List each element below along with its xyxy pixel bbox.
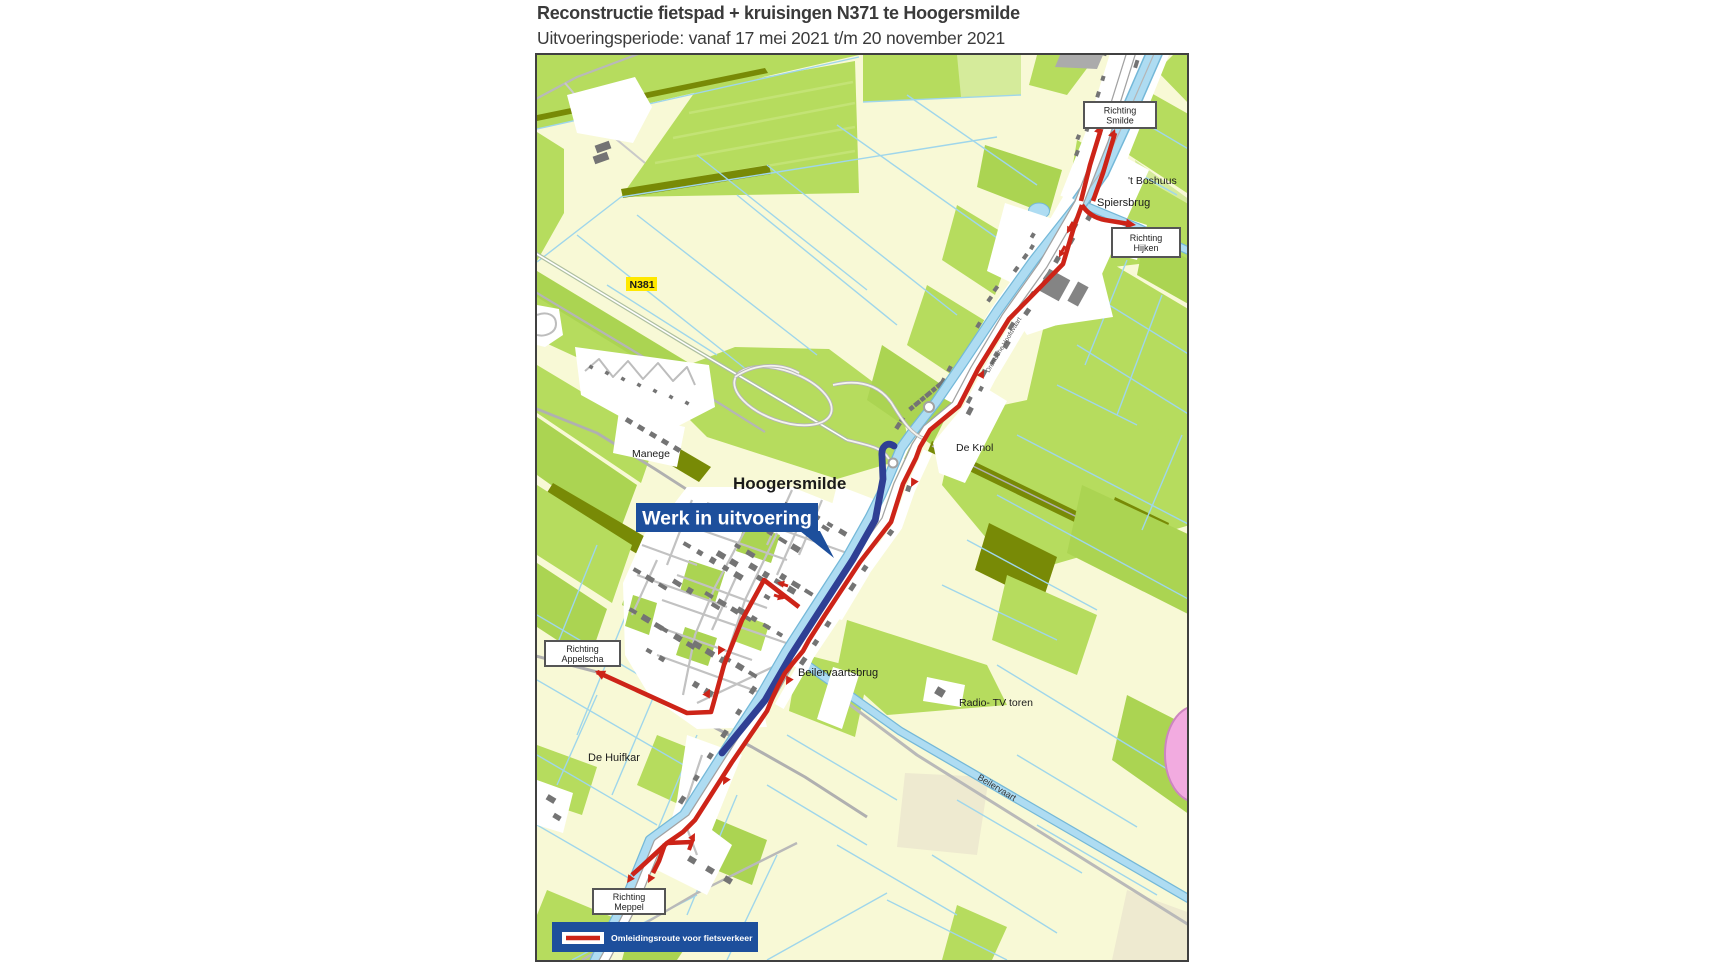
svg-text:Omleidingsroute voor fietsverk: Omleidingsroute voor fietsverkeer: [611, 933, 753, 943]
svg-text:'t Boshuus: 't Boshuus: [1128, 175, 1177, 187]
svg-text:Smilde: Smilde: [1106, 116, 1134, 126]
svg-text:Radio- TV toren: Radio- TV toren: [959, 697, 1033, 709]
svg-text:Manege: Manege: [632, 448, 670, 460]
svg-text:Spiersbrug: Spiersbrug: [1097, 197, 1150, 209]
svg-text:Beilervaartsbrug: Beilervaartsbrug: [798, 667, 878, 679]
svg-text:Hijken: Hijken: [1133, 243, 1158, 253]
svg-text:Richting: Richting: [1130, 233, 1163, 243]
svg-text:Richting: Richting: [1104, 106, 1137, 116]
svg-text:Richting: Richting: [566, 644, 599, 654]
svg-text:Appelscha: Appelscha: [561, 654, 603, 664]
svg-text:Werk in uitvoering: Werk in uitvoering: [642, 508, 812, 530]
svg-text:De Knol: De Knol: [956, 442, 993, 454]
svg-text:Richting: Richting: [613, 892, 646, 902]
svg-text:Meppel: Meppel: [614, 902, 644, 912]
svg-text:De Huifkar: De Huifkar: [588, 752, 640, 764]
svg-text:Hoogersmilde: Hoogersmilde: [733, 474, 846, 493]
svg-text:N381: N381: [630, 279, 655, 291]
